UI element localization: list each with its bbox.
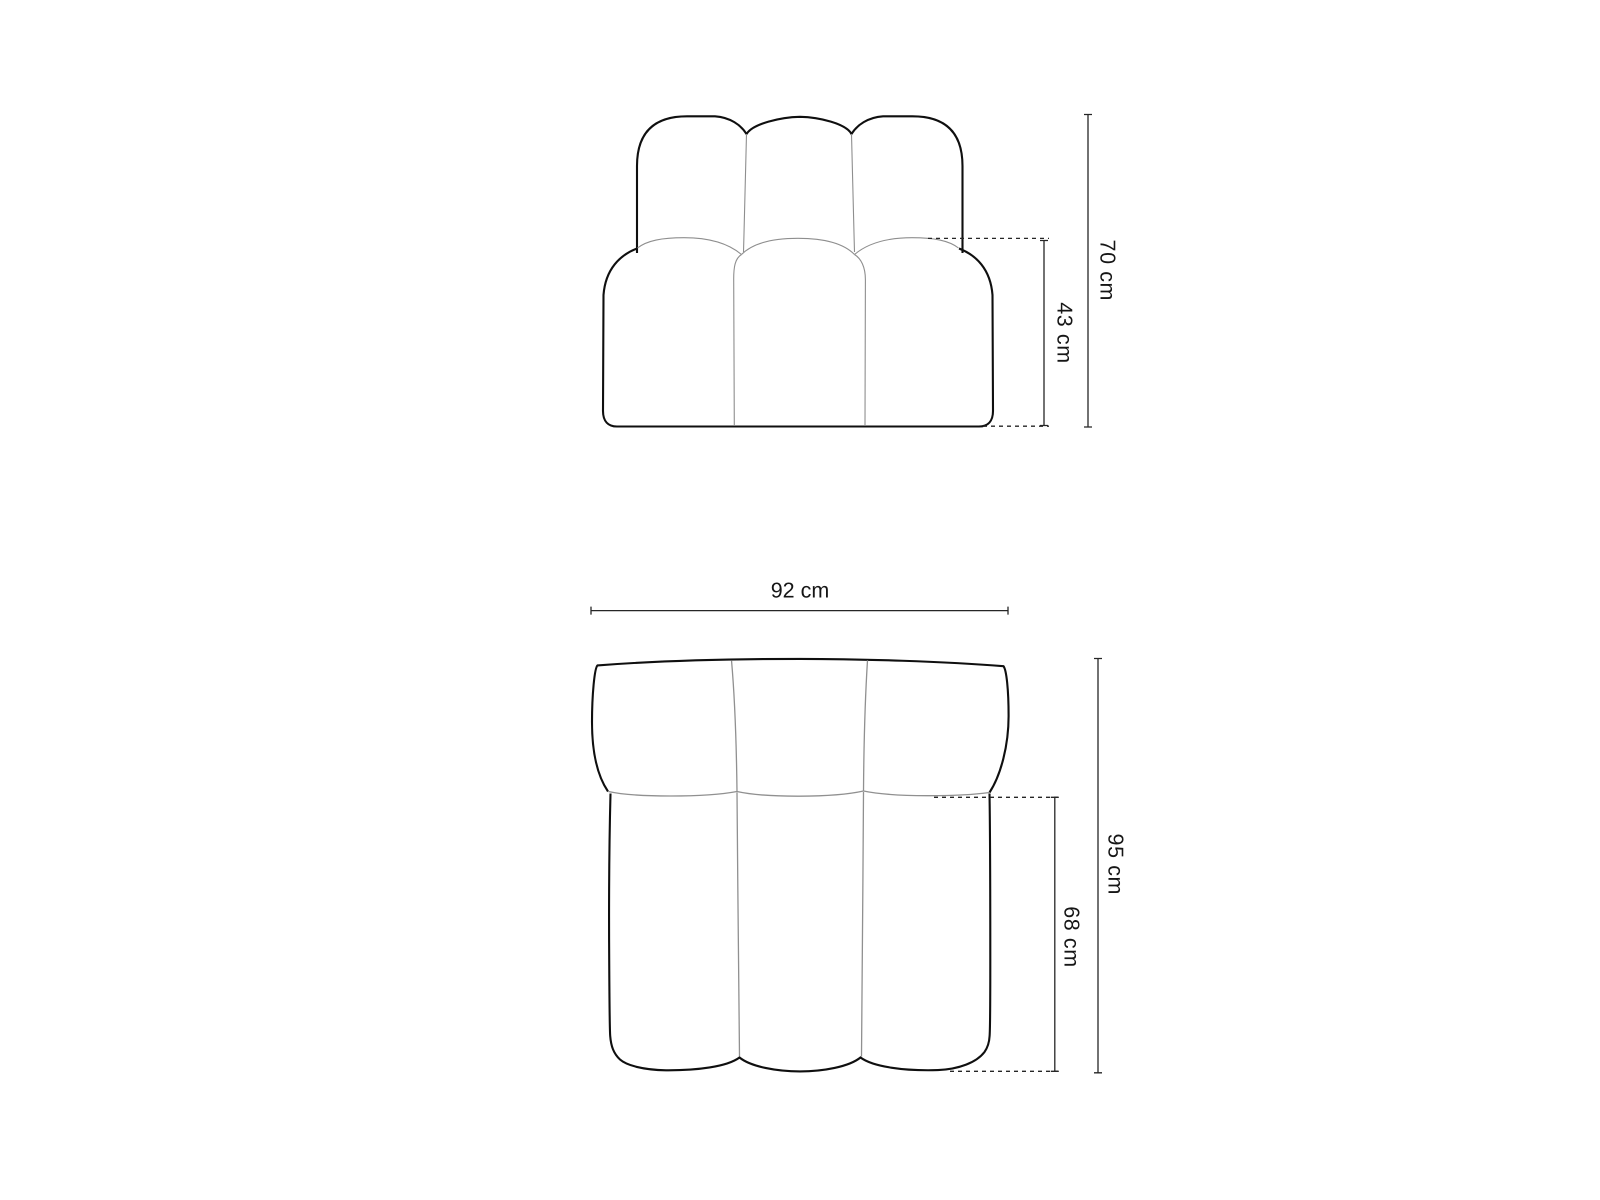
svg-text:95 cm: 95 cm xyxy=(1104,834,1128,896)
svg-text:70 cm: 70 cm xyxy=(1096,240,1120,302)
svg-text:43 cm: 43 cm xyxy=(1052,302,1076,364)
svg-text:68 cm: 68 cm xyxy=(1060,906,1084,968)
svg-text:92 cm: 92 cm xyxy=(771,579,830,603)
